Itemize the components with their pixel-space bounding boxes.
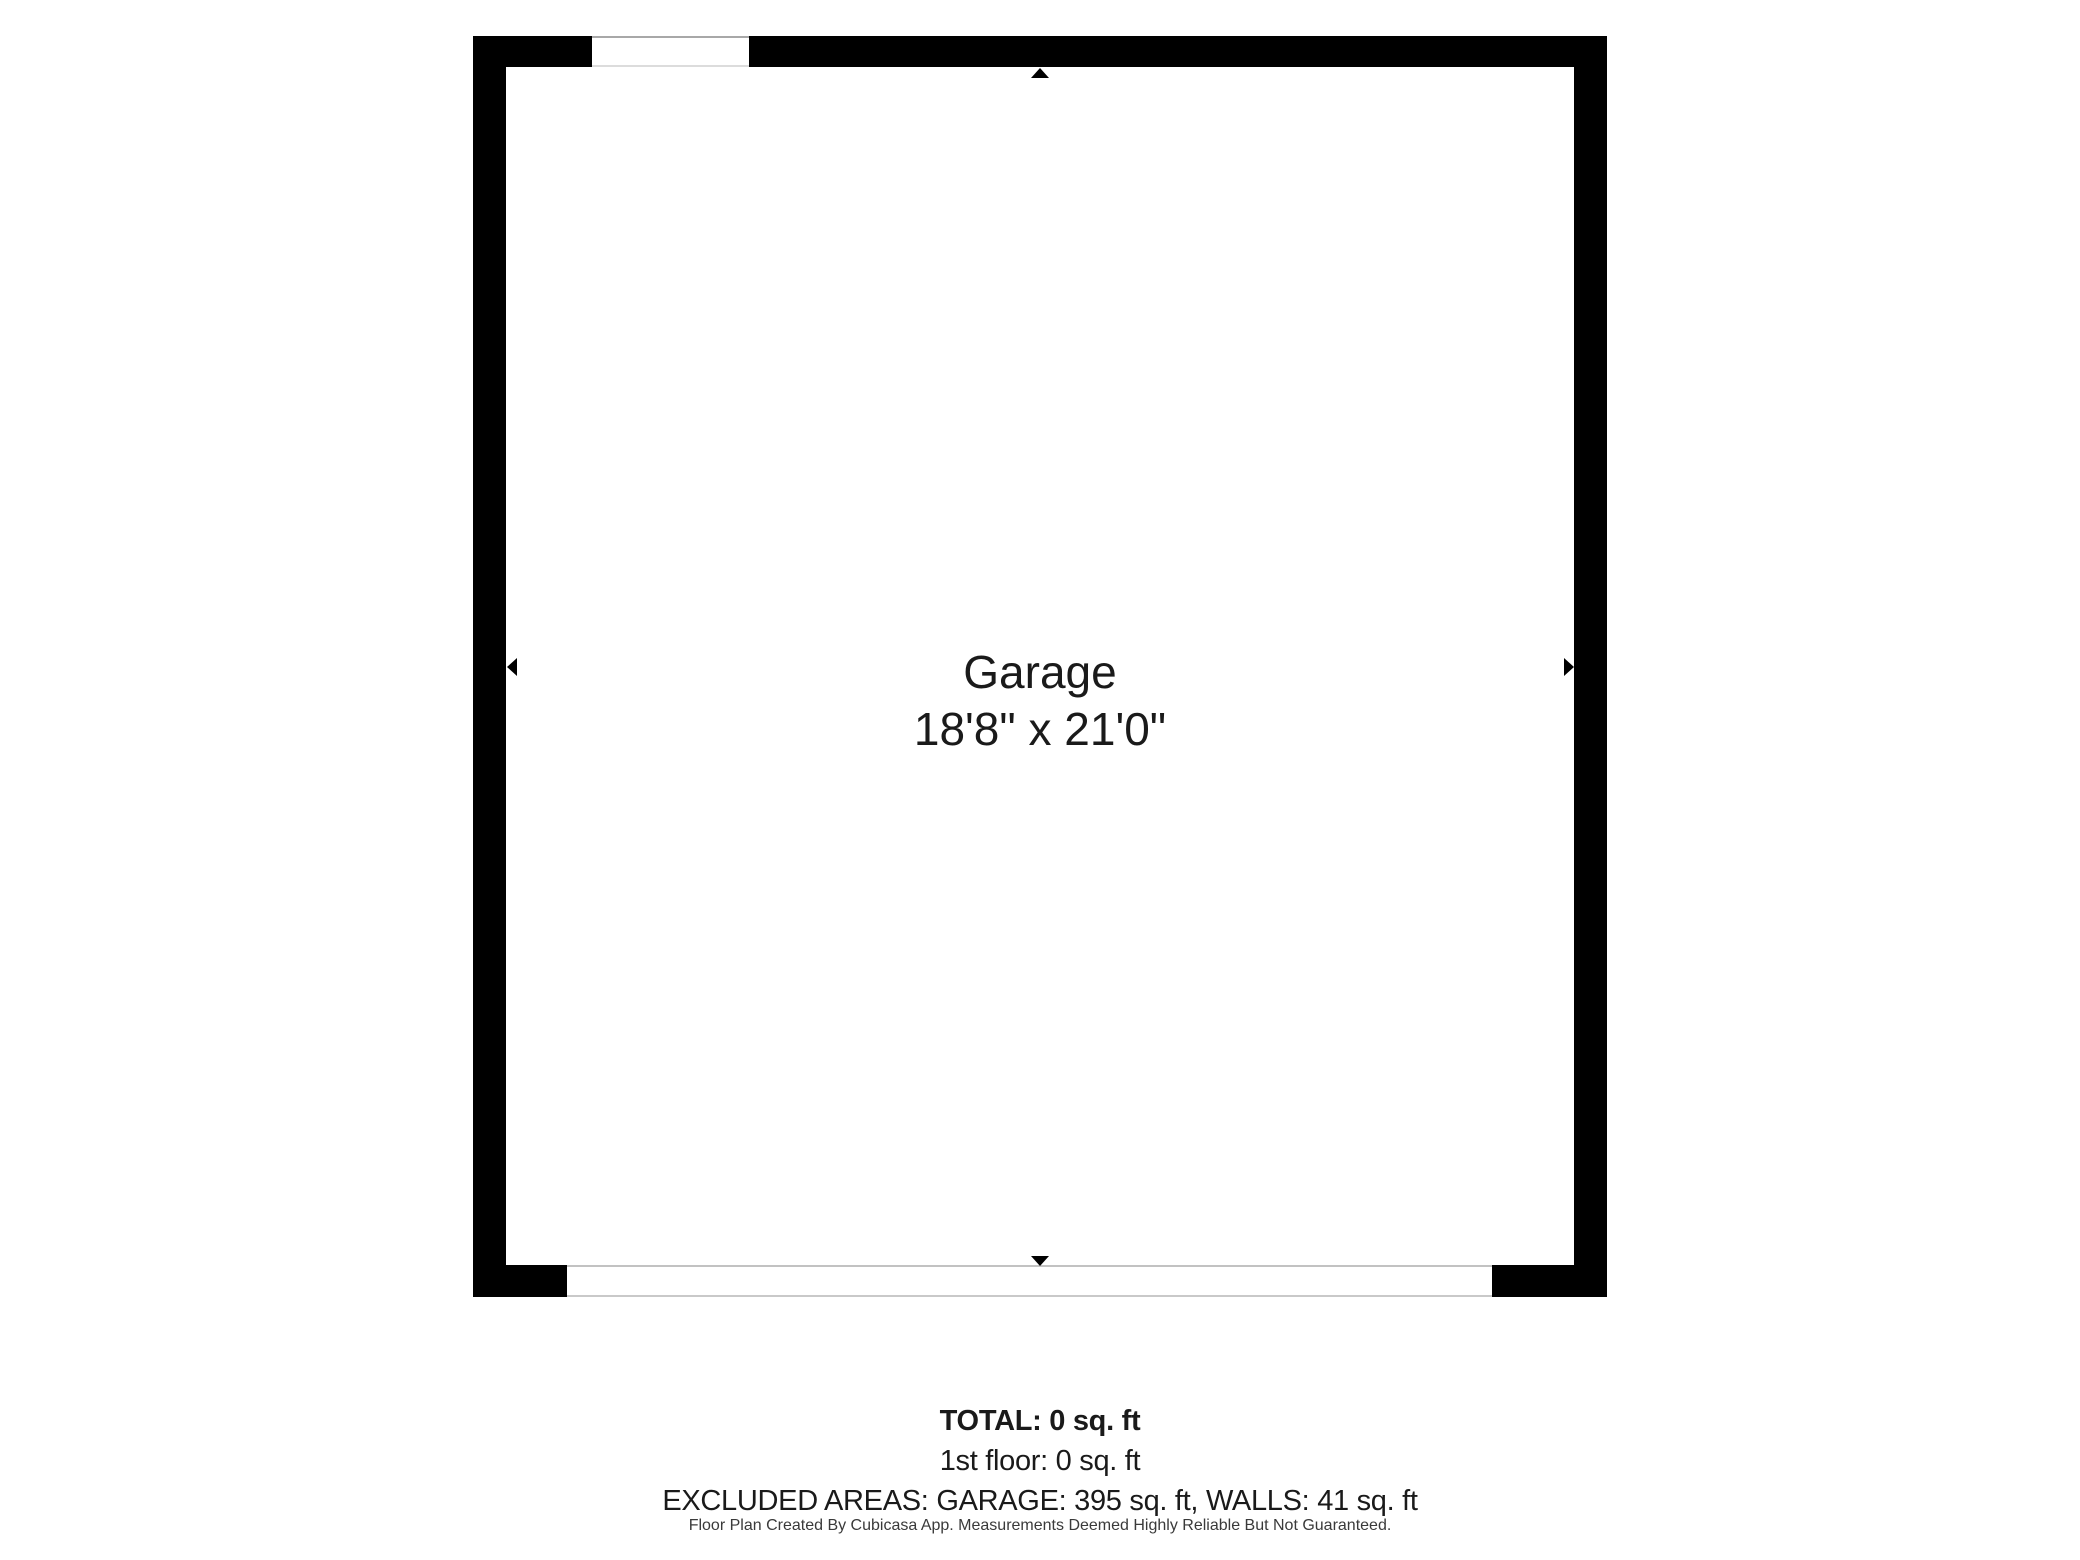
top-wall-opening xyxy=(592,36,749,67)
disclaimer-text: Floor Plan Created By Cubicasa App. Meas… xyxy=(0,1515,2080,1537)
arrow-up-icon xyxy=(1031,68,1049,78)
floorplan-page: Garage 18'8" x 21'0" TOTAL: 0 sq. ft 1st… xyxy=(0,0,2080,1560)
room-name: Garage xyxy=(473,644,1607,701)
room-label-block: Garage 18'8" x 21'0" xyxy=(473,644,1607,758)
area-summary: TOTAL: 0 sq. ft 1st floor: 0 sq. ft EXCL… xyxy=(0,1401,2080,1521)
garage-door-opening xyxy=(567,1265,1492,1297)
arrow-down-icon xyxy=(1031,1256,1049,1266)
first-floor-area-text: 1st floor: 0 sq. ft xyxy=(0,1441,2080,1481)
room-dimensions: 18'8" x 21'0" xyxy=(473,701,1607,758)
total-area-text: TOTAL: 0 sq. ft xyxy=(0,1401,2080,1441)
garage-floorplan: Garage 18'8" x 21'0" xyxy=(473,36,1607,1297)
